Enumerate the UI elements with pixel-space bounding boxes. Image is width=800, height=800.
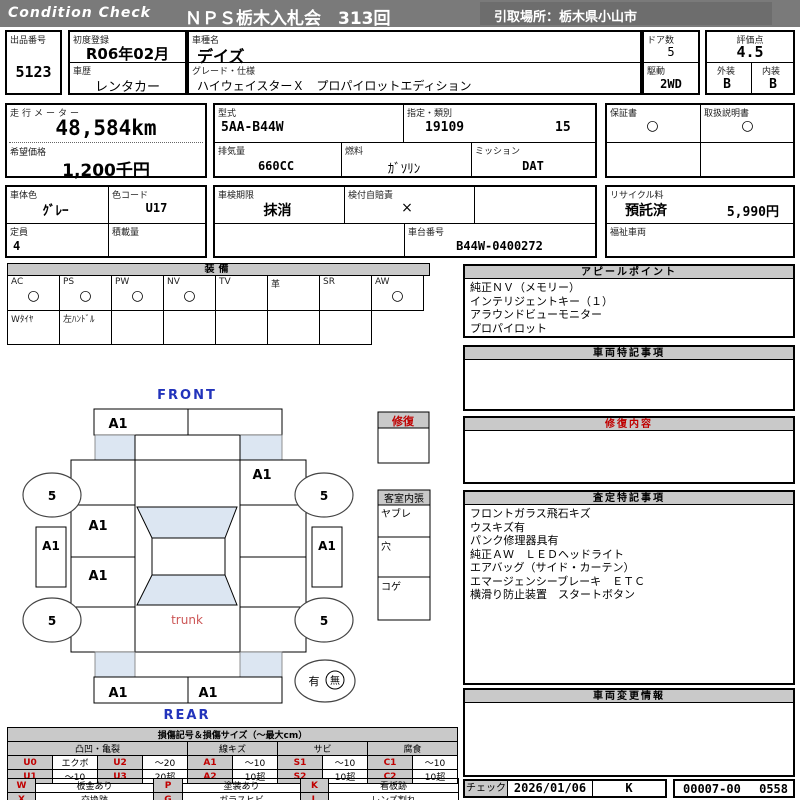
right-sill-panel (312, 527, 342, 587)
repair-mark-legend-table: W 板金あり P 塗装あり K 看板跡 X 交換跡 G ガラスヒビ L レンズ割… (7, 778, 459, 800)
warranty-book-mark: ○ (607, 118, 698, 134)
displacement-value: 660CC (215, 159, 337, 173)
change-info-title: 車両変更情報 (465, 690, 793, 703)
change-info-body (465, 703, 793, 775)
sequence-number: 0558 (759, 782, 788, 796)
mark-left-rear-door: A1 (88, 569, 107, 584)
odometer-value: 48,584km (7, 116, 205, 140)
legend-code: U0 (8, 756, 53, 770)
trunk-label: trunk (171, 613, 203, 627)
legend-code: S1 (278, 756, 323, 770)
equip-sr-label: SR (323, 277, 335, 287)
model-code-label: 型式 (218, 106, 236, 119)
legend-group-dents: 凸凹・亀裂 (8, 742, 188, 756)
drive-value: 2WD (644, 77, 698, 91)
registration-history-box: 初度登録 R06年02月 車歴 レンタカー (68, 30, 187, 95)
odometer-price-box: 走行メーター 48,584km 希望価格 1,200千円 (5, 103, 207, 178)
lot-number-box: 出品番号 5123 (5, 30, 62, 95)
damage-legend-table: 損傷記号＆損傷サイズ（～最大cm） 凸凹・亀裂 線キズ サビ 腐食 U0 エクボ… (7, 727, 458, 784)
model-code-value: 5AA-B44W (221, 120, 284, 135)
capacity-label: 定員 (10, 225, 28, 238)
equip-ps-label: PS (63, 277, 74, 287)
equip-aw-mark: ○ (372, 288, 423, 304)
tire-size-rear-right: 5 (320, 614, 328, 628)
mark-right-front-fender: A1 (252, 468, 271, 483)
roof (152, 538, 225, 575)
color-capacity-box: 車体色 ｸﾞﾚｰ 色コード U17 定員 4 積載量 (5, 185, 207, 258)
assessment-notes-title: 査定特記事項 (465, 492, 793, 505)
repair-detail-panel: 修復内容 (463, 416, 795, 484)
auction-title: ＮＰＳ栃木入札会 313回 (185, 4, 391, 29)
chassis-number-label: 車台番号 (408, 225, 444, 238)
history-value: レンタカー (70, 76, 185, 95)
exterior-grade-label: 外装 (717, 64, 735, 77)
exterior-grade-value: B (707, 77, 747, 92)
legend-code: U2 (98, 756, 143, 770)
rear-left-glass-corner (95, 652, 135, 677)
presence-badge (295, 660, 355, 702)
welfare-label: 福祉車両 (610, 225, 646, 238)
brand-logo: Condition Check (8, 5, 151, 21)
inspection-value: 抹消 (215, 200, 340, 220)
assessment-notes-body: フロントガラス飛石キズウスキズ有パンク修理器具有純正ＡＷ ＬＥＤヘッドライトエア… (465, 505, 793, 683)
interior-grade-value: B (753, 77, 793, 92)
appeal-points-body: 純正ＮＶ（メモリー）インテリジェントキー（１）アラウンドビューモニタープロパイロ… (465, 279, 793, 336)
windshield (137, 507, 237, 538)
mark-right-sill: A1 (318, 539, 336, 553)
insurance-value: × (344, 200, 470, 216)
capacity-value: 4 (13, 239, 20, 253)
lot-number-label: 出品番号 (10, 33, 46, 46)
model-grade-box: 車種名 デイズ グレード・仕様 ハイウェイスターＸ プロパイロットエディション (187, 30, 642, 95)
equip-pw-mark: ○ (112, 288, 163, 304)
front-left-glass-corner (95, 435, 135, 460)
equip-ac-label: AC (11, 277, 23, 287)
legend-group-corrosion: 腐食 (368, 742, 458, 756)
displacement-label: 排気量 (218, 144, 245, 157)
mark-rear-bumper-left: A1 (108, 686, 127, 701)
mark-front-bumper: A1 (108, 417, 127, 432)
transmission-label: ミッション (475, 144, 520, 157)
equip-nv-mark: ○ (164, 288, 215, 304)
appeal-points-title: アピールポイント (465, 266, 793, 279)
car-damage-diagram: FRONT REAR A1 A1 A1 A1 A1 A1 A1 A1 5 5 5… (0, 385, 460, 725)
stock-number: 00007-00 (683, 782, 741, 796)
interior-row-tear: ヤブレ (381, 507, 411, 520)
stock-number-box: 00007-00 0558 (673, 779, 795, 798)
equip-lhd-label: 左ﾊﾝﾄﾞﾙ (63, 312, 95, 325)
body-color-value: ｸﾞﾚｰ (7, 200, 104, 219)
class-number-label: 指定・類別 (407, 106, 452, 119)
equip-ac-mark: ○ (8, 288, 59, 304)
equip-wtire-label: Wﾀｲﾔ (11, 312, 33, 325)
legend-group-scratch: 線キズ (188, 742, 278, 756)
mark-left-sill: A1 (42, 539, 60, 553)
check-box: チェック 2026/01/06 K (463, 779, 667, 798)
color-code-value: U17 (108, 201, 205, 215)
fuel-label: 燃料 (345, 144, 363, 157)
check-date: 2026/01/06 (508, 781, 593, 796)
grade-value: ハイウェイスターＸ プロパイロットエディション (197, 77, 472, 94)
mark-rear-bumper-right: A1 (198, 686, 217, 701)
check-label: チェック (465, 781, 508, 796)
load-label: 積載量 (112, 225, 139, 238)
doors-drive-box: ドア数 5 駆動 2WD (642, 30, 700, 95)
lot-number-value: 5123 (7, 63, 60, 81)
pickup-location-box: 引取場所：栃木県小山市 (480, 2, 772, 25)
equip-pw-label: PW (115, 277, 129, 287)
appeal-points-panel: アピールポイント 純正ＮＶ（メモリー）インテリジェントキー（１）アラウンドビュー… (463, 264, 795, 338)
equip-leather-label: 革 (271, 277, 280, 290)
equip-ps-mark: ○ (60, 288, 111, 304)
presence-yes: 有 (309, 674, 320, 688)
color-code-label: 色コード (112, 188, 148, 201)
checker-initial: K (593, 781, 665, 796)
presence-no: 無 (330, 674, 340, 687)
legend-group-rust: サビ (278, 742, 368, 756)
manual-book-mark: ○ (702, 118, 793, 134)
rear-label: REAR (164, 708, 211, 723)
tire-size-front-left: 5 (48, 489, 56, 503)
vehicle-notes-panel: 車両特記事項 (463, 345, 795, 411)
interior-row-burn: コゲ (381, 581, 401, 593)
recycle-welfare-box: リサイクル料 預託済 5,990円 福祉車両 (605, 185, 795, 258)
front-right-glass-corner (240, 435, 282, 460)
grade-label: グレード・仕様 (192, 64, 255, 77)
interior-grade-label: 内装 (762, 64, 780, 77)
assessment-notes-panel: 査定特記事項 フロントガラス飛石キズウスキズ有パンク修理器具有純正ＡＷ ＬＥＤヘ… (463, 490, 795, 685)
score-box: 評価点 4.5 外装 B 内装 B (705, 30, 795, 95)
legend-code: C1 (368, 756, 413, 770)
repair-flag-title: 修復 (391, 414, 415, 428)
engine-box: 型式 5AA-B44W 指定・類別 19109 15 排気量 660CC 燃料 … (213, 103, 597, 178)
first-registration-value: R06年02月 (70, 43, 185, 64)
repair-detail-title: 修復内容 (465, 418, 793, 431)
rear-window (137, 575, 237, 605)
pickup-location: 引取場所：栃木県小山市 (494, 6, 637, 25)
rear-right-glass-corner (240, 652, 282, 677)
front-label: FRONT (157, 388, 217, 403)
left-sill-panel (36, 527, 66, 587)
vehicle-notes-title: 車両特記事項 (465, 347, 793, 360)
documents-box: 保証書 ○ 取扱説明書 ○ (605, 103, 795, 178)
interior-row-hole: 穴 (381, 540, 391, 553)
recycle-status: 預託済 (625, 200, 667, 220)
change-info-panel: 車両変更情報 (463, 688, 795, 777)
vehicle-notes-body (465, 360, 793, 409)
drive-label: 駆動 (647, 64, 665, 77)
inspection-chassis-box: 車検期限 抹消 検付自賠責 × 車台番号 B44W-0400272 (213, 185, 597, 258)
score-value: 4.5 (707, 43, 793, 61)
recycle-fee: 5,990円 (727, 201, 779, 220)
chassis-number-value: B44W-0400272 (404, 239, 595, 253)
auction-condition-sheet: Condition Check ＮＰＳ栃木入札会 313回 引取場所：栃木県小山… (0, 0, 800, 800)
equip-tv-label: TV (219, 277, 231, 287)
class-number-value1: 19109 (425, 120, 464, 135)
header-band: Condition Check ＮＰＳ栃木入札会 313回 引取場所：栃木県小山… (0, 0, 800, 27)
equip-nv-label: NV (167, 277, 180, 287)
equip-aw-label: AW (375, 277, 390, 287)
equipment-table: 装備 AC○ PS○ PW○ NV○ TV 革 SR AW○ Wﾀｲﾔ 左ﾊﾝﾄ… (7, 263, 430, 345)
transmission-value: DAT (471, 159, 595, 173)
legend-title: 損傷記号＆損傷サイズ（～最大cm） (8, 728, 458, 742)
legend-code: A1 (188, 756, 233, 770)
class-number-value2: 15 (555, 120, 571, 135)
asking-price-value: 1,200千円 (7, 156, 205, 181)
repair-detail-body (465, 431, 793, 482)
tire-size-rear-left: 5 (48, 614, 56, 628)
tire-size-front-right: 5 (320, 489, 328, 503)
interior-lining-title: 客室内張 (384, 492, 424, 505)
doors-value: 5 (644, 45, 698, 59)
mark-left-front-door: A1 (88, 519, 107, 534)
fuel-value: ｶﾞｿﾘﾝ (341, 158, 467, 177)
